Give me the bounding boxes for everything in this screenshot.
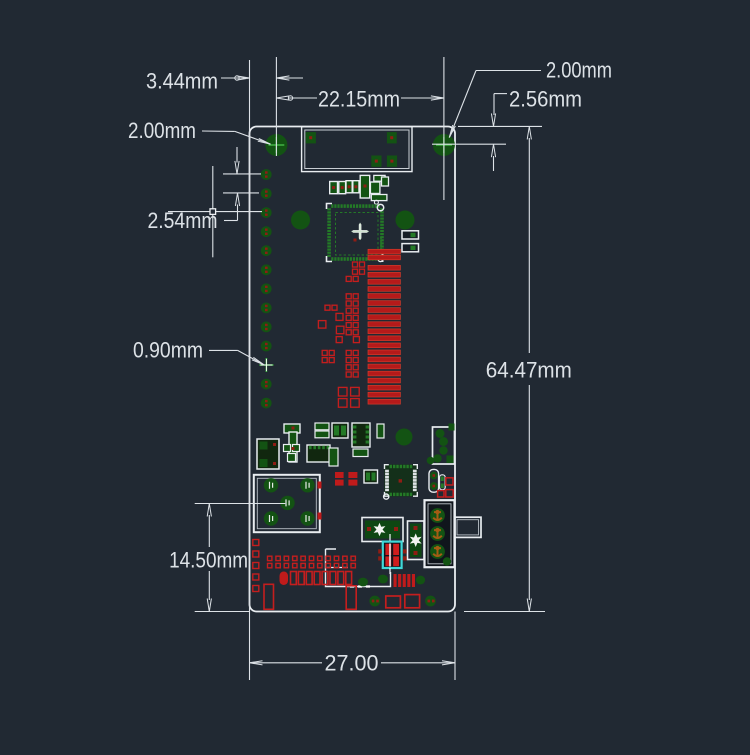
svg-text:14.50mm: 14.50mm	[169, 548, 248, 573]
svg-text:22.15mm: 22.15mm	[318, 87, 400, 112]
svg-text:64.47mm: 64.47mm	[486, 358, 572, 383]
svg-text:2.56mm: 2.56mm	[509, 87, 582, 112]
svg-text:2.54mm: 2.54mm	[148, 208, 218, 233]
svg-text:3.44mm: 3.44mm	[146, 69, 218, 94]
svg-text:0.90mm: 0.90mm	[133, 338, 203, 363]
svg-text:2.00mm: 2.00mm	[128, 118, 196, 143]
svg-text:27.00: 27.00	[325, 651, 379, 676]
svg-text:2.00mm: 2.00mm	[546, 58, 612, 83]
